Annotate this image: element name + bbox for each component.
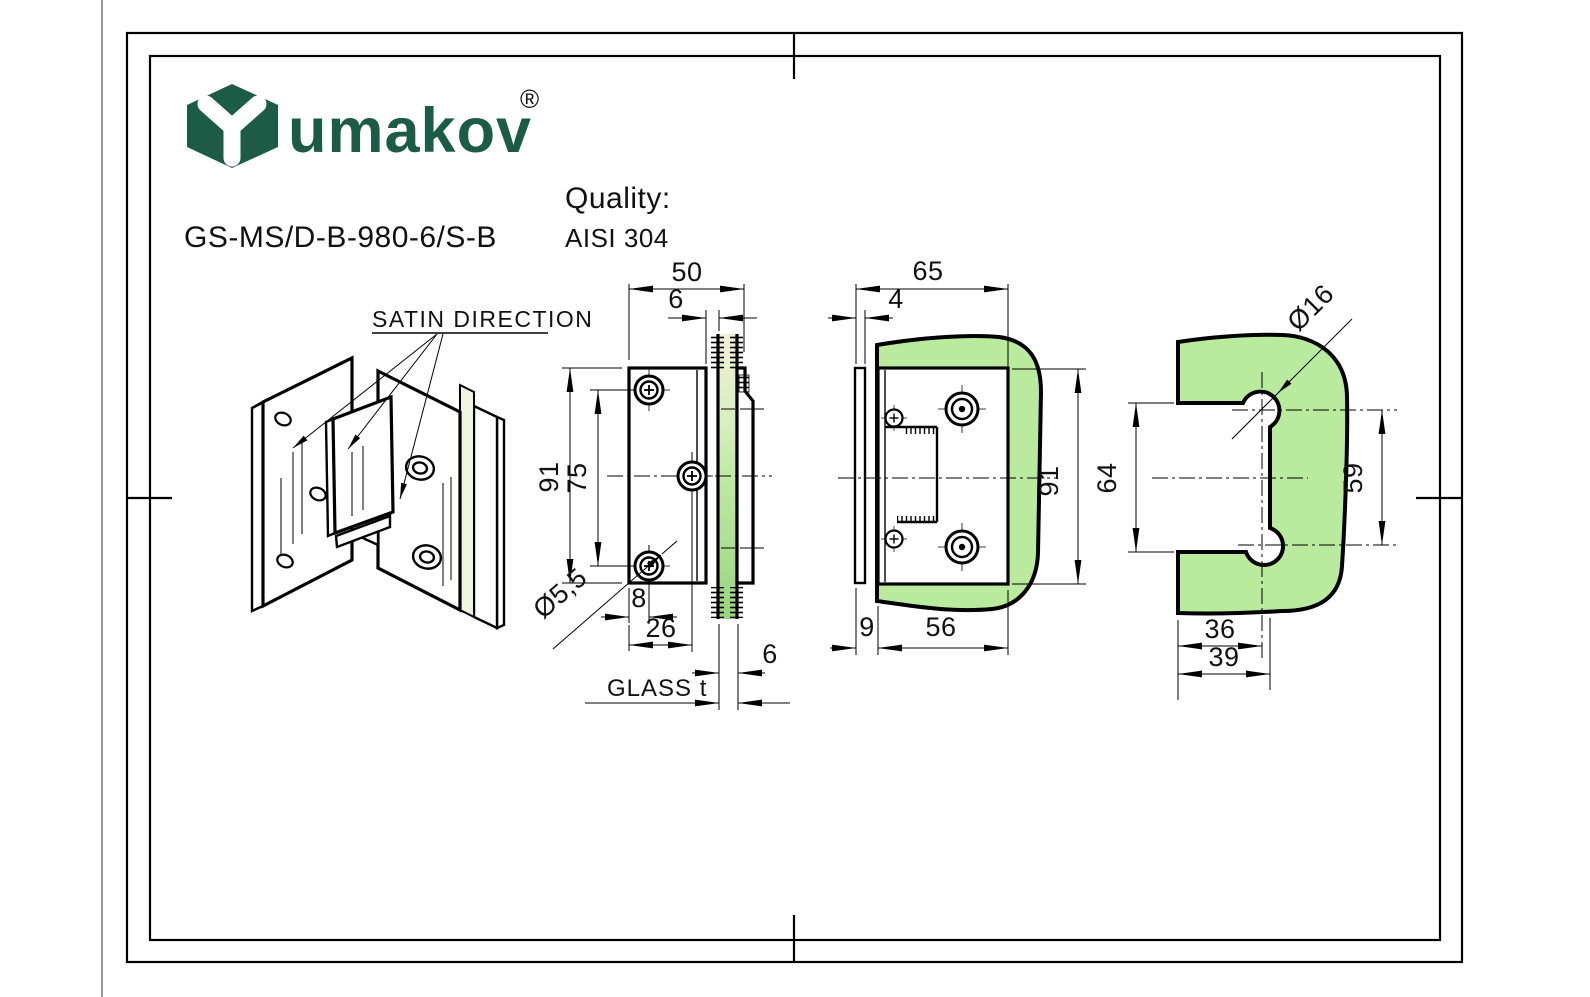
svg-text:59: 59 xyxy=(1338,462,1368,493)
glass-label: GLASS t xyxy=(607,675,707,702)
dim-glass-thickness: 6 GLASS t xyxy=(585,624,790,710)
glass-cutout-view: Ø16 64 59 36 39 xyxy=(1092,278,1397,700)
dim-9: 9 xyxy=(859,612,875,642)
svg-text:64: 64 xyxy=(1092,462,1122,493)
svg-text:91: 91 xyxy=(534,461,564,492)
title-block: GS-MS/D-B-980-6/S-B Quality: AISI 304 xyxy=(184,182,671,254)
quality-label: Quality: xyxy=(565,182,671,215)
dim-56: 56 xyxy=(925,612,956,642)
mounted-view: 65 4 91 9 56 xyxy=(828,256,1086,655)
quality-value: AISI 304 xyxy=(565,223,669,253)
svg-text:6: 6 xyxy=(762,639,778,669)
thread-band-top xyxy=(903,428,937,434)
dim-36: 36 xyxy=(1204,614,1235,644)
hinge-body xyxy=(878,368,1008,584)
thread-band-bottom xyxy=(897,516,937,522)
svg-text:6: 6 xyxy=(668,284,684,314)
satin-direction-label: SATIN DIRECTION xyxy=(372,306,593,332)
svg-text:65: 65 xyxy=(912,256,943,286)
svg-text:4: 4 xyxy=(888,284,904,314)
svg-text:Ø16: Ø16 xyxy=(1281,278,1339,336)
registered-mark: ® xyxy=(520,84,539,114)
glass-cutout-shape xyxy=(1178,335,1347,614)
drawing-sheet: umakov ® GS-MS/D-B-980-6/S-B Quality: AI… xyxy=(0,0,1590,997)
dim-39: 39 xyxy=(1208,642,1239,672)
iso-glass-edge xyxy=(460,385,474,617)
technical-drawing: umakov ® GS-MS/D-B-980-6/S-B Quality: AI… xyxy=(0,0,1590,997)
svg-text:50: 50 xyxy=(671,257,702,287)
dim-26: 26 xyxy=(629,613,692,651)
set-screw-threads xyxy=(739,375,749,392)
iso-back-plate xyxy=(474,406,497,628)
brand-name: umakov xyxy=(288,96,532,166)
brand-logo: umakov ® xyxy=(187,84,539,168)
svg-text:8: 8 xyxy=(631,583,647,613)
cover-plate-edge xyxy=(855,368,865,583)
svg-text:75: 75 xyxy=(562,462,592,493)
svg-text:26: 26 xyxy=(645,613,676,643)
svg-text:91: 91 xyxy=(1034,465,1064,496)
svg-text:Ø5,5: Ø5,5 xyxy=(527,562,592,624)
dim-36-39: 36 39 xyxy=(1178,614,1270,700)
product-code: GS-MS/D-B-980-6/S-B xyxy=(184,221,497,254)
dim-75: 75 xyxy=(562,390,633,566)
